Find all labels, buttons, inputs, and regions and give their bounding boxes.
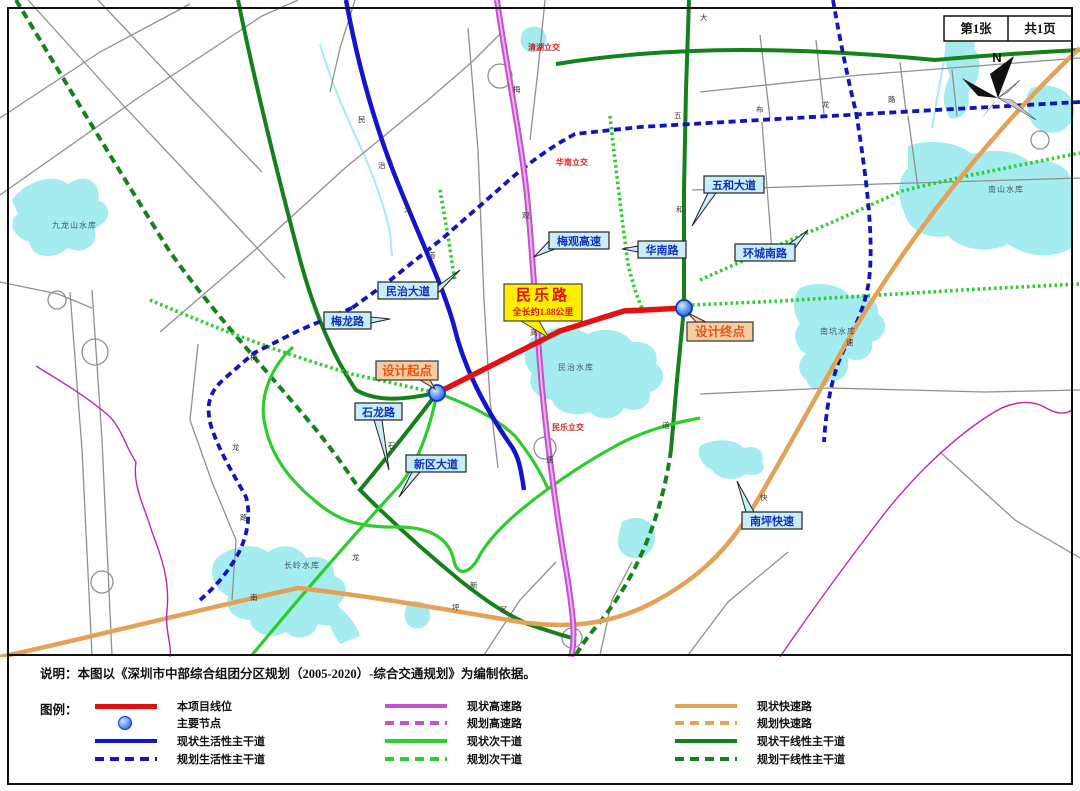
page-border — [7, 7, 1073, 785]
road-plan-map-page: 民治大道梅观高速五和大道布龙路梅龙路新区南坪快速石龙 清湖立交华南立交民乐立交 … — [0, 0, 1080, 791]
